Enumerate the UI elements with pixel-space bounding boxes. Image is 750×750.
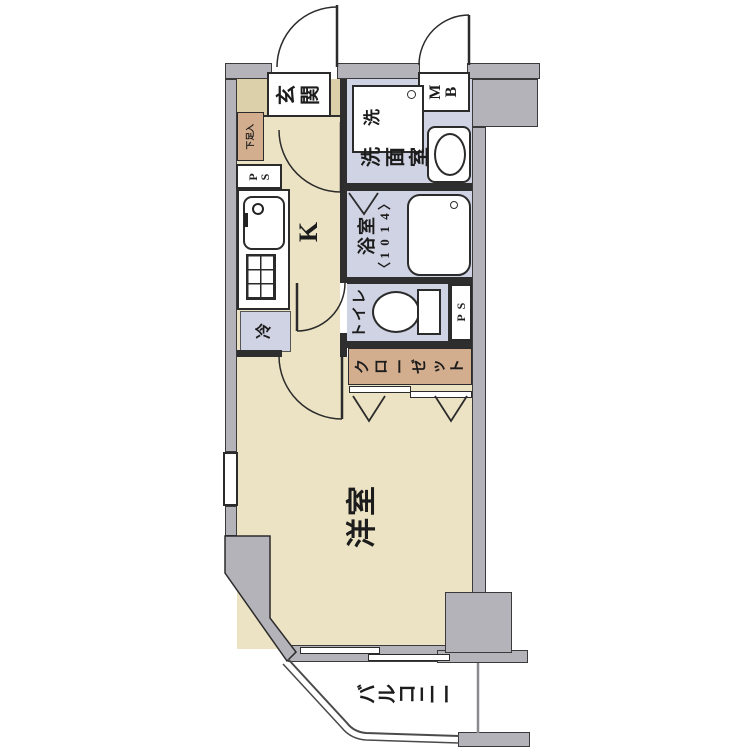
fridge-label: 冷 bbox=[250, 316, 280, 346]
meter-box-label: MB bbox=[418, 72, 470, 112]
shoe-box-label: 下足入 bbox=[237, 112, 264, 161]
label-glyph: B bbox=[444, 84, 460, 100]
genkan-label: 玄関 bbox=[267, 72, 331, 117]
label-glyph: ル bbox=[378, 684, 398, 704]
label-glyph: 1 bbox=[378, 223, 391, 236]
closet-door-track-right bbox=[410, 391, 472, 398]
label-glyph: コ bbox=[398, 684, 418, 704]
label-glyph: 関 bbox=[301, 85, 321, 105]
label-glyph: 〈 bbox=[378, 262, 391, 275]
top-wall-mid bbox=[337, 63, 420, 79]
label-glyph: ト bbox=[353, 323, 368, 338]
label-glyph: ロ bbox=[375, 359, 390, 374]
kitchen-sink bbox=[243, 196, 285, 250]
closet-door-track-left bbox=[349, 386, 411, 393]
kitchen-label: K bbox=[294, 217, 324, 247]
label-glyph: 入 bbox=[246, 124, 255, 133]
label-glyph: ー bbox=[438, 684, 458, 704]
top-wall-right bbox=[467, 63, 540, 79]
label-glyph: 洋 bbox=[348, 518, 378, 548]
balcony-label: バルコニー bbox=[352, 682, 464, 706]
washer-tap-icon bbox=[407, 90, 416, 99]
label-glyph: 4 bbox=[378, 210, 391, 223]
washroom-bath-wall bbox=[347, 183, 472, 191]
label-glyph: 浴 bbox=[358, 237, 376, 255]
label-glyph: 足 bbox=[246, 132, 255, 141]
right-wall bbox=[472, 127, 486, 654]
tub-tap-icon bbox=[450, 201, 458, 209]
label-glyph: 室 bbox=[358, 217, 376, 235]
toilet-label: トイレ bbox=[350, 286, 370, 340]
left-window bbox=[223, 452, 238, 506]
label-glyph: ッ bbox=[432, 359, 447, 374]
mb-door-arc bbox=[419, 15, 469, 65]
label-glyph: 洗 bbox=[364, 109, 381, 126]
stove-icon bbox=[246, 254, 276, 300]
label-glyph: 室 bbox=[410, 147, 430, 167]
label-glyph: S bbox=[259, 171, 271, 183]
label-glyph: 〉 bbox=[378, 197, 391, 210]
kitchen-room-wall bbox=[237, 350, 282, 357]
label-glyph: ー bbox=[394, 359, 409, 374]
corner-pillar bbox=[445, 592, 512, 653]
closet-label: クローゼット bbox=[352, 356, 470, 376]
toilet-closet-wall bbox=[345, 341, 472, 348]
label-glyph: 0 bbox=[378, 236, 391, 249]
label-glyph: ゼ bbox=[413, 359, 428, 374]
label-glyph: 冷 bbox=[257, 323, 273, 339]
sliding-window-left bbox=[300, 647, 380, 654]
ps-left-label: PS bbox=[236, 164, 282, 189]
label-glyph: P bbox=[455, 312, 467, 324]
label-glyph: 洗 bbox=[362, 147, 382, 167]
bathtub bbox=[407, 194, 471, 276]
faucet-pipe bbox=[244, 213, 248, 227]
top-wall-left bbox=[225, 63, 272, 79]
label-glyph: ト bbox=[451, 359, 466, 374]
label-glyph: M bbox=[428, 84, 444, 100]
label-glyph: S bbox=[455, 300, 467, 312]
top-right-block bbox=[472, 79, 538, 127]
faucet-icon bbox=[252, 203, 264, 215]
wet-wall-upper bbox=[340, 79, 347, 283]
bath-toilet-wall bbox=[347, 277, 472, 284]
sliding-window-right bbox=[368, 654, 450, 661]
balcony-end-wall bbox=[458, 732, 530, 747]
label-glyph: 下 bbox=[246, 141, 255, 150]
western-room-label: 洋室 bbox=[346, 482, 380, 552]
label-glyph: 玄 bbox=[277, 85, 297, 105]
label-glyph: K bbox=[296, 219, 322, 245]
label-glyph: バ bbox=[358, 684, 378, 704]
washer-label: 洗 bbox=[355, 100, 389, 134]
label-glyph: イ bbox=[353, 306, 368, 321]
washroom-label: 洗面室 bbox=[360, 142, 432, 172]
label-glyph: 室 bbox=[348, 486, 378, 516]
left-wall-lower bbox=[225, 506, 237, 536]
label-glyph: 面 bbox=[386, 147, 406, 167]
floor-plan: 玄関 MB 下足入 PS 洗 洗面室 K 浴室 〈1014〉 冷 トイレ PS … bbox=[0, 0, 750, 750]
ps-right-label: PS bbox=[450, 286, 472, 338]
bath-label: 浴室 〈1014〉 bbox=[350, 196, 398, 276]
label-glyph: レ bbox=[353, 289, 368, 304]
front-door-arc bbox=[277, 7, 337, 67]
label-glyph: 1 bbox=[378, 249, 391, 262]
toilet-tank bbox=[417, 289, 441, 335]
vanity-bowl bbox=[434, 133, 466, 176]
toilet-bowl bbox=[372, 291, 420, 333]
left-wall-upper bbox=[225, 79, 237, 452]
label-glyph: ク bbox=[356, 359, 371, 374]
label-glyph: ニ bbox=[418, 684, 438, 704]
